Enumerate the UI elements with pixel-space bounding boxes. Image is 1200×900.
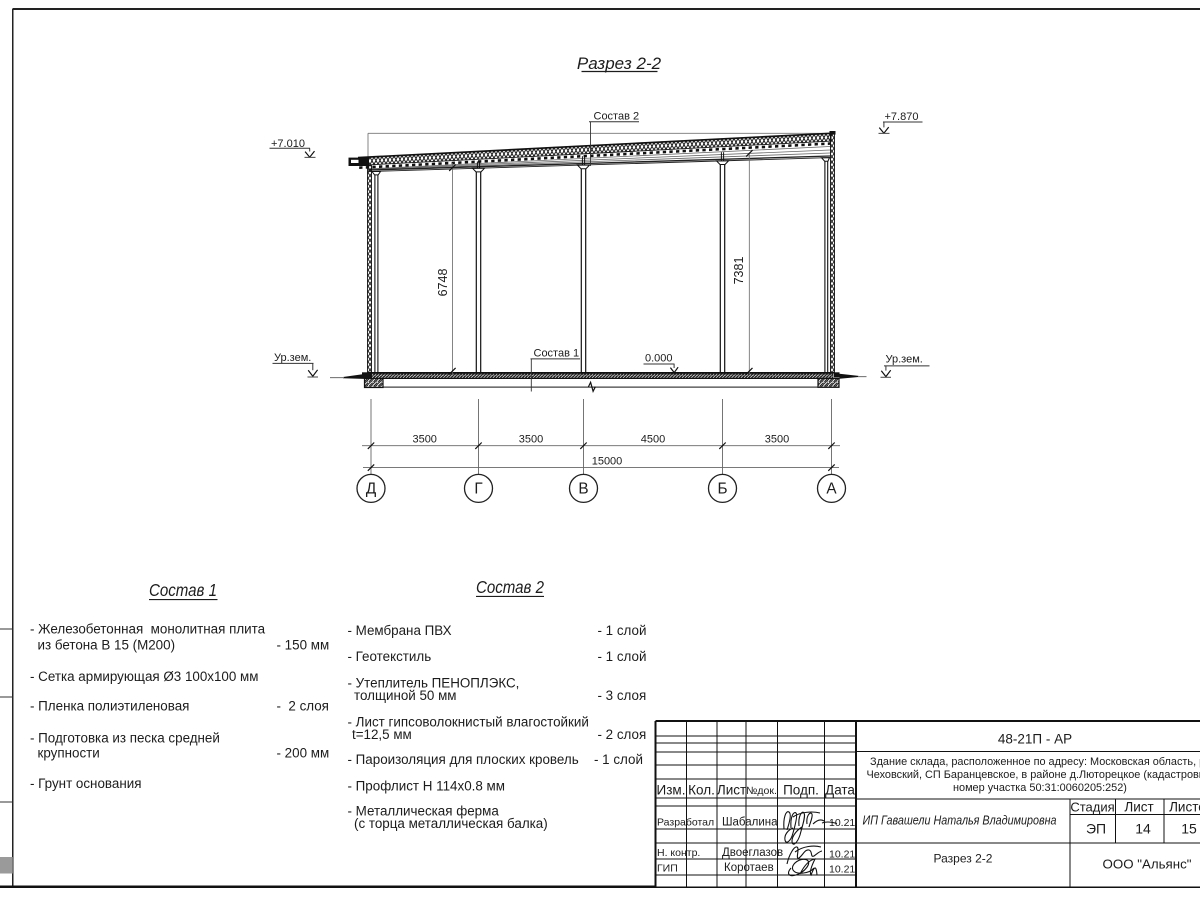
svg-text:- 1 слой: - 1 слой (598, 623, 647, 638)
svg-text:10.21: 10.21 (829, 864, 855, 876)
svg-text:- 1 слой: - 1 слой (598, 649, 647, 664)
svg-text:14: 14 (1135, 821, 1151, 837)
svg-text:- Мембрана ПВХ: - Мембрана ПВХ (348, 623, 452, 638)
svg-text:3500: 3500 (765, 434, 789, 446)
svg-text:Подп.: Подп. (783, 783, 819, 798)
svg-text:Чеховский, СП Баранцевское, в: Чеховский, СП Баранцевское, в районе д.Л… (867, 769, 1200, 781)
svg-text:Стадия: Стадия (1070, 800, 1114, 815)
svg-text:крупности: крупности (38, 745, 100, 760)
svg-text:Состав 2: Состав 2 (594, 111, 640, 123)
svg-text:- 2 слоя: - 2 слоя (598, 727, 647, 742)
svg-text:Разрез 2-2: Разрез 2-2 (577, 54, 662, 73)
svg-text:3500: 3500 (412, 434, 436, 446)
svg-text:ООО "Альянс": ООО "Альянс" (1103, 857, 1192, 872)
svg-text:Шабалина: Шабалина (722, 817, 778, 829)
svg-text:- Пленка полиэтиленовая: - Пленка полиэтиленовая (30, 699, 189, 714)
svg-text:Ур.зем.: Ур.зем. (886, 353, 923, 365)
svg-text:3500: 3500 (519, 434, 543, 446)
svg-text:ГИП: ГИП (657, 863, 678, 875)
svg-text:Д: Д (366, 481, 377, 498)
svg-text:- 200 мм: - 200 мм (277, 745, 330, 760)
svg-text:Г: Г (474, 481, 482, 498)
svg-text:- Грунт основания: - Грунт основания (30, 776, 141, 791)
svg-text:0.000: 0.000 (645, 352, 673, 364)
svg-text:7381: 7381 (732, 257, 746, 285)
svg-text:- 3 слоя: - 3 слоя (598, 688, 647, 703)
svg-text:- Профлист Н 114х0.8 мм: - Профлист Н 114х0.8 мм (348, 779, 505, 794)
svg-text:ИП Гавашели Наталья Владимиров: ИП Гавашели Наталья Владимировна (863, 813, 1057, 828)
svg-text:- 1 слой: - 1 слой (594, 752, 643, 767)
svg-text:Ур.зем.: Ур.зем. (274, 352, 311, 364)
svg-text:Разрез 2-2: Разрез 2-2 (934, 852, 993, 866)
svg-text:10.21: 10.21 (829, 849, 855, 861)
svg-text:Кол.: Кол. (688, 783, 715, 798)
svg-text:- Железобетонная монолитная п: - Железобетонная монолитная плита (30, 622, 266, 637)
svg-text:Двоеглазов: Двоеглазов (722, 847, 783, 859)
svg-text:Состав 2: Состав 2 (476, 577, 544, 597)
svg-text:В: В (578, 481, 588, 498)
svg-text:А: А (826, 481, 837, 498)
svg-text:48-21П - АР: 48-21П - АР (998, 732, 1072, 747)
svg-text:- Подготовка из песка средней: - Подготовка из песка средней (30, 731, 220, 746)
svg-text:- 2 слоя: - 2 слоя (277, 699, 329, 714)
svg-text:4500: 4500 (641, 434, 665, 446)
svg-text:Состав 1: Состав 1 (149, 580, 217, 600)
svg-text:- Сетка армирующая Ø3 100х100: - Сетка армирующая Ø3 100х100 мм (30, 669, 258, 684)
svg-text:Изм.: Изм. (657, 783, 686, 798)
svg-text:Н. контр.: Н. контр. (657, 847, 700, 859)
svg-text:+7.870: +7.870 (885, 111, 919, 123)
svg-text:Состав 1: Состав 1 (534, 348, 580, 360)
svg-text:Б: Б (717, 481, 727, 498)
svg-text:(с торца металлическая балка): (с торца металлическая балка) (354, 816, 548, 831)
svg-text:Лист: Лист (717, 783, 746, 798)
svg-text:номер участка 50:31:0060205:25: номер участка 50:31:0060205:252) (953, 782, 1127, 794)
svg-text:№док.: №док. (746, 785, 777, 797)
svg-text:Дата: Дата (825, 783, 855, 798)
svg-text:ЭП: ЭП (1086, 821, 1106, 837)
svg-text:15000: 15000 (592, 456, 623, 468)
svg-text:t=12,5 мм: t=12,5 мм (352, 727, 412, 742)
svg-text:- Пароизоляция для плоских кро: - Пароизоляция для плоских кровель (348, 752, 579, 767)
svg-text:из бетона В 15 (М200): из бетона В 15 (М200) (38, 638, 176, 653)
svg-text:Здание склада, расположенное п: Здание склада, расположенное по адресу: … (870, 756, 1200, 768)
svg-text:15: 15 (1181, 821, 1197, 837)
svg-text:Лист: Лист (1124, 800, 1153, 815)
svg-text:- 150 мм: - 150 мм (277, 638, 330, 653)
svg-text:Листов: Листов (1169, 800, 1200, 815)
svg-text:толщиной 50 мм: толщиной 50 мм (354, 688, 457, 703)
svg-text:6748: 6748 (436, 269, 450, 297)
svg-text:Разработал: Разработал (657, 817, 714, 829)
svg-text:- Геотекстиль: - Геотекстиль (348, 649, 432, 664)
svg-text:Коротаев: Коротаев (724, 862, 774, 874)
